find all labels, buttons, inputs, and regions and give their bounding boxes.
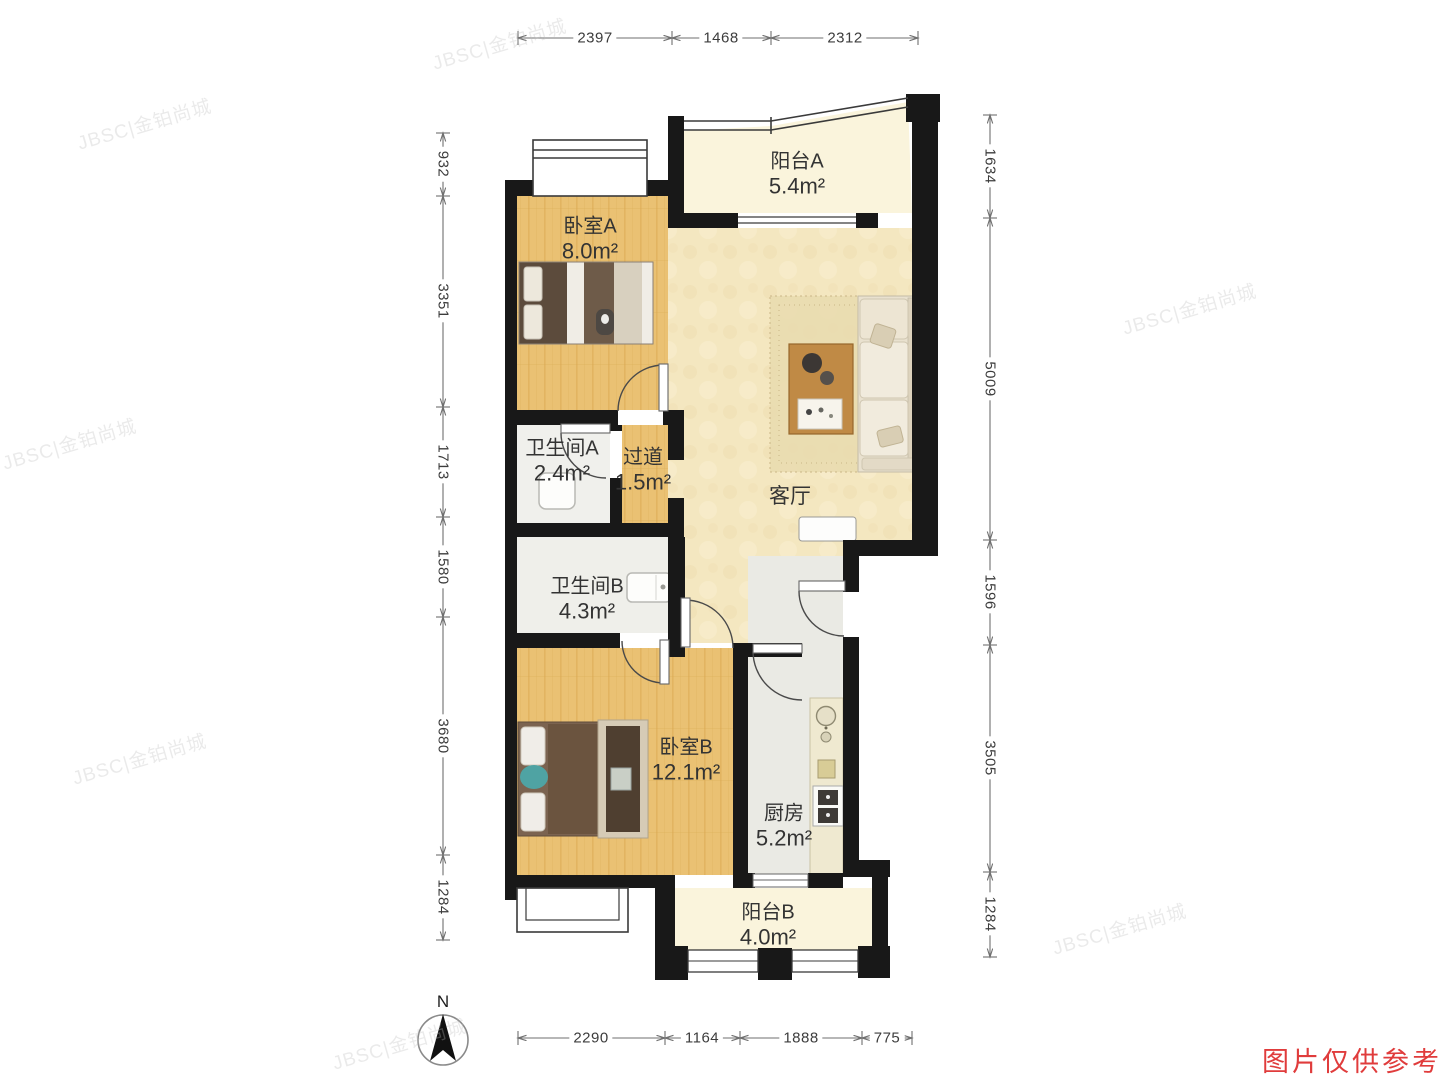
kitchen-counter (810, 698, 843, 875)
dim-left-6: 1284 (435, 875, 452, 918)
dim-top-1: 2397 (573, 30, 616, 47)
floorplan-page: 2397 1468 2312 932 3351 1713 1580 3680 1… (0, 0, 1440, 1080)
dim-right-3: 1596 (982, 570, 999, 613)
room-name: 厨房 (756, 801, 812, 825)
room-label-bathroom-b: 卫生间B 4.3m² (550, 574, 623, 625)
dim-right-4: 3505 (982, 736, 999, 779)
dim-left-5: 3680 (435, 714, 452, 757)
room-label-bedroom-b: 卧室B 12.1m² (652, 735, 720, 786)
compass-icon (418, 1014, 468, 1065)
room-name: 阳台B (740, 900, 796, 924)
room-label-bathroom-a: 卫生间A 2.4m² (525, 436, 598, 487)
compass-north-label: N (437, 992, 449, 1012)
wardrobe (598, 720, 648, 838)
room-area: 5.2m² (756, 826, 812, 853)
room-area: 4.0m² (740, 925, 796, 952)
coffee-table (789, 344, 853, 434)
floorplan-drawing (0, 0, 1440, 1080)
room-area: 12.1m² (652, 760, 720, 787)
room-name: 卧室A (562, 214, 618, 238)
room-name: 客厅 (769, 484, 811, 510)
room-area: 4.3m² (550, 599, 623, 626)
dim-bottom-3: 1888 (779, 1030, 822, 1047)
room-area: 5.4m² (769, 174, 825, 201)
dim-bottom-1: 2290 (569, 1030, 612, 1047)
room-area: 8.0m² (562, 239, 618, 266)
room-label-hallway: 过道 1.5m² (615, 445, 671, 496)
room-area: 1.5m² (615, 470, 671, 497)
room-label-kitchen: 厨房 5.2m² (756, 801, 812, 852)
dim-left-3: 1713 (435, 440, 452, 483)
room-label-living-room: 客厅 (769, 484, 811, 510)
room-label-balcony-b: 阳台B 4.0m² (740, 900, 796, 951)
room-area: 2.4m² (525, 461, 598, 488)
bed-b (518, 722, 598, 836)
dim-right-5: 1284 (982, 892, 999, 935)
room-label-balcony-a: 阳台A 5.4m² (769, 149, 825, 200)
room-name: 阳台A (769, 149, 825, 173)
bed-a (519, 262, 653, 344)
room-name: 卫生间A (525, 436, 598, 460)
room-name: 卧室B (652, 735, 720, 759)
dim-bottom-2: 1164 (681, 1030, 723, 1047)
dim-bottom-4: 775 (870, 1030, 905, 1047)
room-label-bedroom-a: 卧室A 8.0m² (562, 214, 618, 265)
dim-left-2: 3351 (435, 279, 452, 322)
room-name: 过道 (615, 445, 671, 469)
dim-right-2: 5009 (982, 357, 999, 400)
entry-cabinet (799, 517, 856, 541)
dim-right-1: 1634 (982, 144, 999, 187)
room-name: 卫生间B (550, 574, 623, 598)
dim-top-2: 1468 (699, 30, 742, 47)
dim-left-1: 932 (435, 147, 452, 182)
dim-top-3: 2312 (823, 30, 866, 47)
reference-only-notice: 图片仅供参考 (1262, 1040, 1440, 1079)
dim-left-4: 1580 (435, 545, 452, 588)
